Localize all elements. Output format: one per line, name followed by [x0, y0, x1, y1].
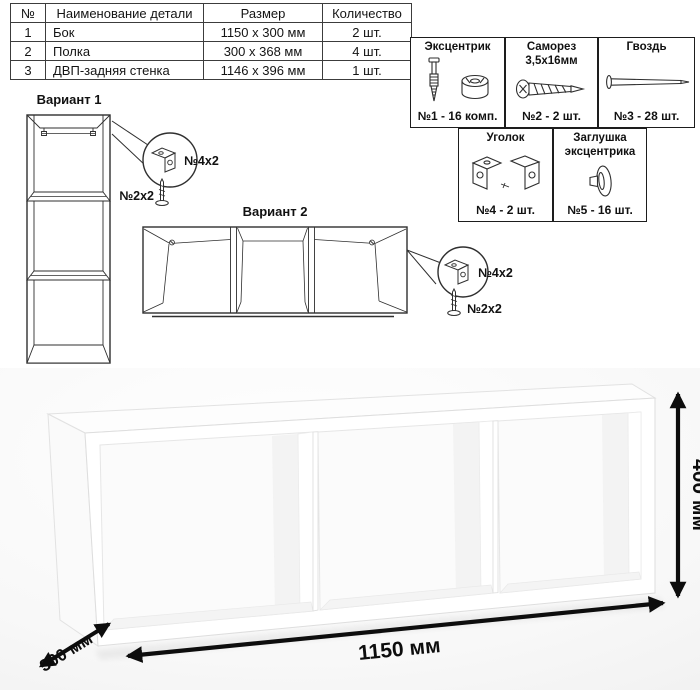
callout-circle [438, 247, 488, 297]
bracket-mini-icon [42, 128, 96, 136]
variant2-callout: №4x2 №2x2 [407, 247, 513, 316]
hardware-count: №4 - 2 шт. [476, 203, 535, 221]
hardware-cell-cap: Заглушка эксцентрика №5 - 16 шт. [553, 128, 647, 222]
table-cell: 1 [11, 23, 46, 42]
table-cell: 3 [11, 61, 46, 80]
header-size: Размер [204, 4, 323, 23]
hardware-cell-nail: Гвоздь №3 - 28 шт. [598, 37, 695, 128]
hardware-count: №5 - 16 шт. [567, 203, 633, 221]
table-cell: Бок [46, 23, 204, 42]
header-name: Наименование детали [46, 4, 204, 23]
hardware-title: Уголок [484, 129, 526, 146]
hardware-cell-bracket: Уголок №4 - 2 шт. [458, 128, 553, 222]
screw-icon [506, 68, 597, 109]
table-header-row: № Наименование детали Размер Количество [11, 4, 412, 23]
hardware-count: №3 - 28 шт. [614, 109, 680, 127]
table-cell: 1150 x 300 мм [204, 23, 323, 42]
product-photo-background [0, 368, 700, 690]
screw-mini-icon [170, 240, 375, 245]
corner-bracket-icon [459, 146, 552, 203]
parts-table: № Наименование детали Размер Количество … [10, 3, 412, 80]
header-num: № [11, 4, 46, 23]
table-cell: 1146 x 396 мм [204, 61, 323, 80]
table-row: 3 ДВП-задняя стенка 1146 x 396 мм 1 шт. [11, 61, 412, 80]
callout-circle [143, 133, 197, 187]
nail-icon [599, 55, 694, 109]
hardware-count: №1 - 16 комп. [418, 109, 498, 127]
screw-icon [156, 179, 169, 206]
hardware-title: Заглушка эксцентрика [554, 129, 646, 159]
corner-bracket-icon [152, 148, 175, 172]
header-qty: Количество [323, 4, 412, 23]
screw-icon [448, 289, 461, 316]
table-cell: Полка [46, 42, 204, 61]
table-cell: 4 шт. [323, 42, 412, 61]
variant2-drawing [143, 227, 407, 317]
hardware-cell-screw: Саморез 3,5х16мм №2 - 2 шт. [505, 37, 598, 128]
hardware-title: Гвоздь [624, 38, 668, 55]
corner-bracket-icon [445, 260, 468, 284]
assembly-instruction-sheet: №4х2 №2х2 №4x2 №2x2 [0, 0, 700, 690]
table-row: 1 Бок 1150 x 300 мм 2 шт. [11, 23, 412, 42]
hardware-cell-eccentric: Эксцентрик №1 - 16 комп. [410, 37, 505, 128]
variant2-title: Вариант 2 [220, 204, 330, 219]
variant1-title: Вариант 1 [23, 92, 115, 107]
eccentric-cam-icon [411, 55, 504, 109]
table-row: 2 Полка 300 x 368 мм 4 шт. [11, 42, 412, 61]
variant1-screw-label: №2х2 [119, 189, 154, 203]
hardware-title: Саморез 3,5х16мм [506, 38, 597, 68]
variant1-bracket-label: №4х2 [184, 154, 219, 168]
variant2-screw-label: №2x2 [467, 302, 502, 316]
table-cell: ДВП-задняя стенка [46, 61, 204, 80]
hardware-count: №2 - 2 шт. [522, 109, 581, 127]
table-cell: 2 шт. [323, 23, 412, 42]
table-cell: 300 x 368 мм [204, 42, 323, 61]
variant2-bracket-label: №4x2 [478, 266, 513, 280]
hardware-title: Эксцентрик [422, 38, 492, 55]
variant1-drawing [27, 115, 110, 363]
variant1-callout: №4х2 №2х2 [112, 121, 219, 206]
table-cell: 1 шт. [323, 61, 412, 80]
table-cell: 2 [11, 42, 46, 61]
cam-cap-icon [554, 159, 646, 203]
